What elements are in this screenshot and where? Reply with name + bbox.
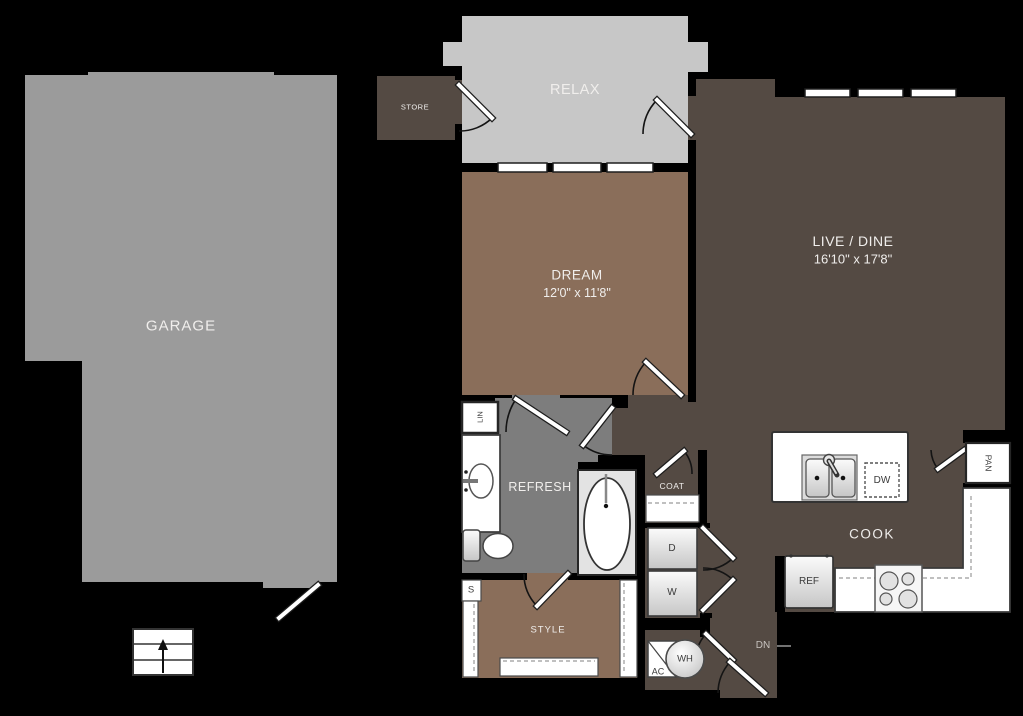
garage-door — [279, 585, 318, 618]
dn-label: DN — [756, 641, 770, 651]
pantry-label: PAN — [984, 455, 993, 472]
ac-label: AC — [652, 668, 665, 677]
coat-closet-shelf — [646, 495, 699, 522]
washer-label: W — [667, 588, 676, 598]
garage-label: GARAGE — [146, 319, 216, 334]
window — [498, 163, 653, 172]
dream-dimensions: 12'0" x 11'8" — [543, 287, 611, 300]
dryer-label: D — [668, 544, 675, 554]
relax-label: RELAX — [550, 83, 600, 98]
bathtub-icon — [578, 470, 636, 575]
stove-icon — [875, 565, 922, 612]
refrigerator-label: REF — [799, 577, 819, 587]
cook-label: COOK — [849, 527, 895, 541]
dream-label: DREAM — [551, 268, 602, 282]
floor-plan: GARAGE RELAX STORE DREAM 12'0" x 11'8" L… — [0, 0, 1023, 716]
water-heater-label: WH — [677, 654, 693, 664]
coat-label: COAT — [660, 482, 685, 491]
fixtures-overlay — [0, 0, 1023, 716]
linen-label: LIN — [476, 411, 484, 423]
live-dine-label: LIVE / DINE — [813, 234, 894, 248]
refresh-label: REFRESH — [508, 481, 571, 494]
store-label: STORE — [401, 103, 429, 111]
kitchen-island — [772, 432, 908, 502]
stairs-icon — [133, 629, 193, 675]
window — [805, 89, 956, 97]
live-dine-dimensions: 16'10" x 17'8" — [814, 253, 893, 266]
toilet-icon — [463, 530, 513, 561]
shelf-label: S — [468, 585, 474, 595]
style-label: STYLE — [530, 625, 565, 635]
dishwasher-label: DW — [874, 476, 891, 486]
bathroom-sink-icon — [462, 435, 500, 532]
